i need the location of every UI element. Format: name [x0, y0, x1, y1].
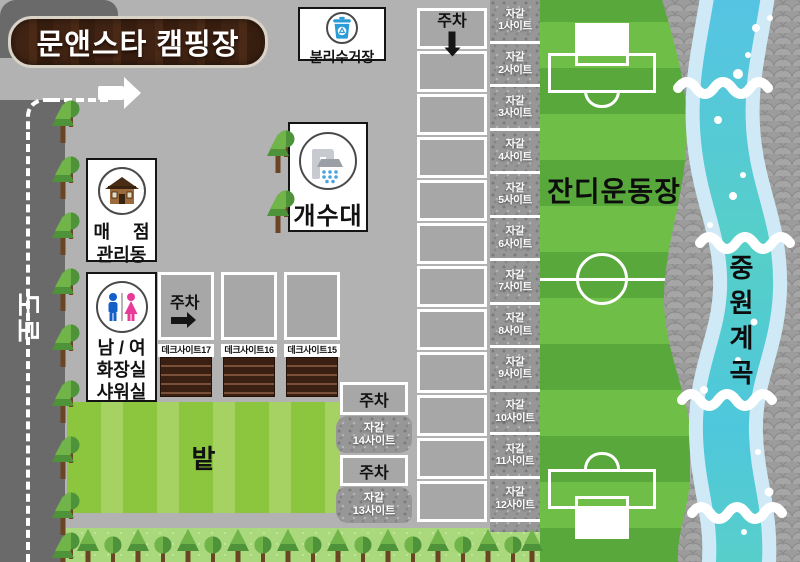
- gravel-site-4: 자갈 4사이트: [490, 131, 540, 175]
- grass-strip: [65, 528, 542, 562]
- management-label: 관리동: [93, 244, 149, 267]
- parking-cell-3: [417, 94, 487, 135]
- gravel-sites-column: 자갈 1사이트 자갈 2사이트 자갈 3사이트 자갈 4사이트 자갈 5사이트 …: [490, 0, 540, 532]
- campground-map: 도로 밭 잔디운동장: [0, 0, 800, 562]
- parking-cell-1: 주차: [417, 8, 487, 49]
- parking-cell-6: [417, 223, 487, 264]
- gravel-site-label: 자갈 8사이트: [498, 312, 532, 337]
- gravel-site-label: 자갈 10사이트: [495, 399, 534, 424]
- faucet-icon: [299, 132, 357, 190]
- parking-cell-4: [417, 137, 487, 178]
- restroom-label: 남 / 여 화장실 샤워실: [97, 338, 147, 404]
- deck-parking-square-17: 주차: [158, 272, 214, 340]
- gravel-site-label: 자갈 6사이트: [498, 225, 532, 250]
- deck-site-17: [160, 357, 212, 397]
- deck-site-15-label: 데크사이트15: [284, 344, 340, 357]
- parking-box-site13: 주차: [340, 455, 408, 486]
- gravel-site-13: 자갈 13사이트: [336, 487, 412, 523]
- gravel-site-9: 자갈 9사이트: [490, 348, 540, 392]
- deck-site-16-label: 데크사이트16: [221, 344, 277, 357]
- center-circle: [576, 253, 628, 305]
- parking-cell-5: [417, 180, 487, 221]
- parking-label: 주차: [359, 459, 388, 483]
- gravel-site-label: 자갈 9사이트: [498, 356, 532, 381]
- store-management-building: 매 점 관리동: [86, 158, 157, 262]
- gravel-site-1: 자갈 1사이트: [490, 0, 540, 44]
- male-icon: [108, 293, 117, 321]
- deck-site-17-label: 데크사이트17: [158, 344, 214, 357]
- gravel-site-label: 자갈 14사이트: [353, 422, 396, 447]
- parking-label: 주차: [359, 387, 388, 411]
- road-direction-arrow-icon: [98, 86, 124, 100]
- parking-box-site14: 주차: [340, 382, 408, 415]
- parking-cell-10: [417, 395, 487, 436]
- goal-area-top: [575, 53, 629, 66]
- road-direction-arrow-icon: [124, 77, 141, 109]
- female-icon: [124, 293, 137, 321]
- store-label: 매 점: [93, 221, 149, 244]
- crop-field-label: 밭: [192, 439, 216, 476]
- goal-top: [575, 23, 629, 53]
- gravel-site-12: 자갈 12사이트: [490, 479, 540, 523]
- deck-parking-square-15: [284, 272, 340, 340]
- recycle-bin-icon: [326, 12, 358, 44]
- arrow-down-icon: [449, 32, 456, 48]
- arrow-right-icon: [171, 317, 187, 324]
- gravel-site-7: 자갈 7사이트: [490, 261, 540, 305]
- parking-label: 주차: [170, 289, 199, 313]
- penalty-arc-bottom: [584, 452, 620, 469]
- sink-station: 개수대: [288, 122, 368, 232]
- deck-site-16: [223, 357, 275, 397]
- parking-cell-12: [417, 481, 487, 522]
- parking-label: 주차: [437, 14, 466, 30]
- gravel-site-8: 자갈 8사이트: [490, 305, 540, 349]
- parking-cell-2: [417, 51, 487, 92]
- parking-cell-11: [417, 438, 487, 479]
- gravel-site-label: 자갈 4사이트: [498, 138, 532, 163]
- gravel-site-2: 자갈 2사이트: [490, 44, 540, 88]
- gravel-site-label: 자갈 13사이트: [353, 492, 396, 517]
- crop-field: 밭: [67, 402, 340, 513]
- gravel-site-3: 자갈 3사이트: [490, 87, 540, 131]
- title-badge: 문앤스타 캠핑장: [8, 16, 268, 68]
- restroom-shower-building: 남 / 여 화장실 샤워실: [86, 272, 157, 402]
- gravel-site-label: 자갈 2사이트: [498, 51, 532, 76]
- gravel-site-10: 자갈 10사이트: [490, 392, 540, 436]
- gravel-site-label: 자갈 7사이트: [498, 269, 532, 294]
- recycling-station: 분리수거장: [298, 7, 386, 61]
- goal-bottom: [575, 509, 629, 539]
- deck-parking-square-16: [221, 272, 277, 340]
- gravel-site-6: 자갈 6사이트: [490, 218, 540, 262]
- sink-label: 개수대: [293, 196, 362, 231]
- parking-cell-9: [417, 352, 487, 393]
- gravel-site-5: 자갈 5사이트: [490, 174, 540, 218]
- road-dash-corner: [26, 98, 56, 138]
- road-label: 도로: [11, 284, 48, 354]
- gravel-site-label: 자갈 12사이트: [495, 486, 534, 511]
- gravel-site-label: 자갈 1사이트: [498, 8, 532, 33]
- gravel-site-label: 자갈 3사이트: [498, 95, 532, 120]
- parking-cell-8: [417, 309, 487, 350]
- valley-label: 중원계곡: [722, 254, 759, 394]
- parking-column: 주차: [417, 8, 487, 522]
- penalty-arc-top: [584, 91, 620, 108]
- house-icon: [98, 167, 146, 215]
- goal-area-bottom: [575, 496, 629, 509]
- page-title: 문앤스타 캠핑장: [37, 21, 240, 63]
- restroom-icons: [96, 281, 148, 333]
- parking-cell-7: [417, 266, 487, 307]
- deck-site-15: [286, 357, 338, 397]
- gravel-site-label: 자갈 11사이트: [496, 443, 535, 468]
- recycling-station-label: 분리수거장: [310, 47, 374, 67]
- gravel-site-label: 자갈 5사이트: [498, 182, 532, 207]
- gravel-site-14: 자갈 14사이트: [336, 416, 412, 453]
- gravel-site-11: 자갈 11사이트: [490, 435, 540, 479]
